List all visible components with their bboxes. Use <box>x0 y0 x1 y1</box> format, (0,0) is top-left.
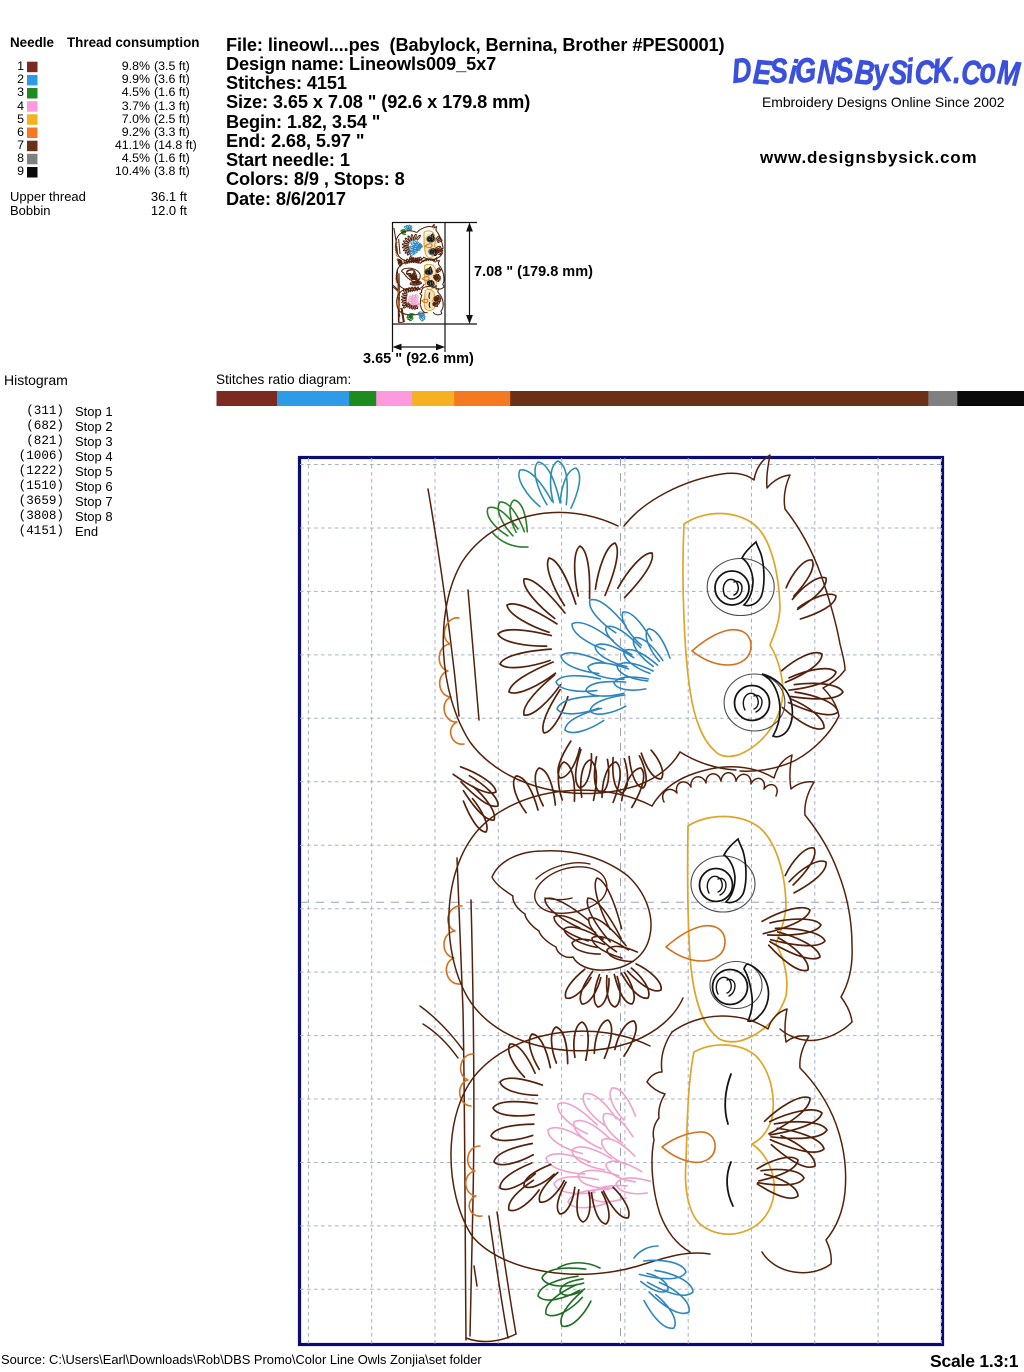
svg-text:DESiGNSBySiCK.CoM: DESiGNSBySiCK.CoM <box>731 51 1023 93</box>
